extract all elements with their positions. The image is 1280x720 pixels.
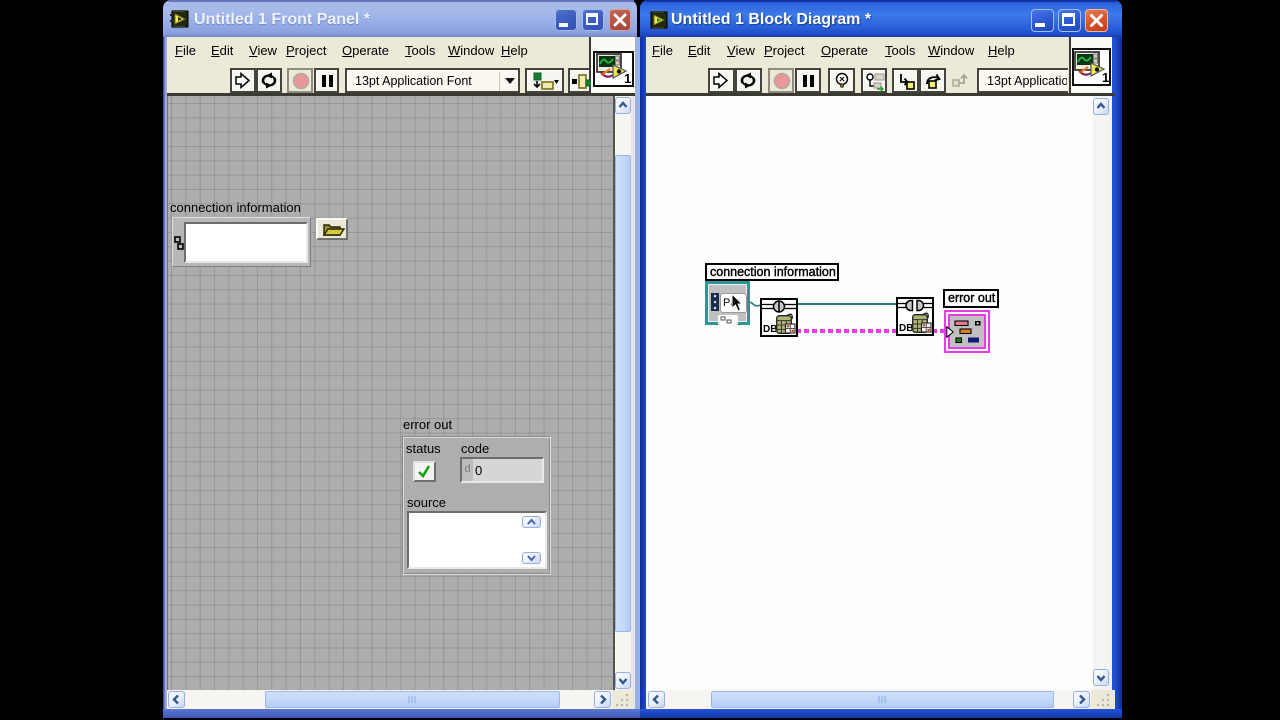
svg-text:1: 1	[1102, 70, 1109, 84]
svg-text:DB: DB	[899, 323, 913, 334]
svg-text:1: 1	[624, 71, 631, 85]
svg-text:DB: DB	[763, 324, 777, 335]
